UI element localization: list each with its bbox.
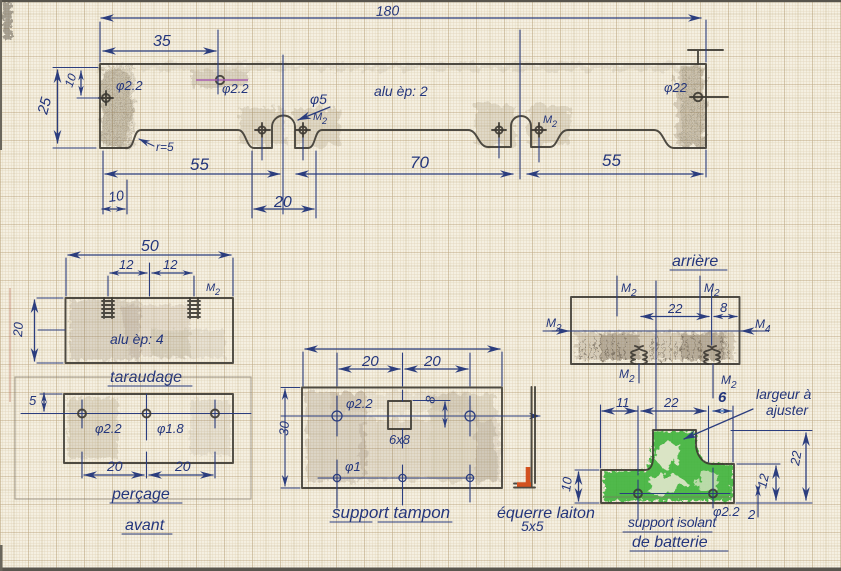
svg-text:alu èp: 4: alu èp: 4 [110,331,164,347]
svg-text:50: 50 [141,238,159,255]
svg-text:35: 35 [153,33,171,50]
svg-text:φ22: φ22 [664,80,688,95]
svg-text:support tampon: support tampon [332,503,450,522]
svg-text:10: 10 [107,187,125,205]
svg-text:2: 2 [214,287,220,297]
svg-text:2: 2 [551,119,557,129]
svg-text:M: M [621,281,631,295]
svg-text:5: 5 [29,393,37,408]
svg-text:2: 2 [730,380,737,391]
svg-text:12: 12 [119,257,134,272]
svg-text:φ1.8: φ1.8 [157,421,184,436]
svg-text:70: 70 [410,153,429,172]
svg-text:20: 20 [361,353,379,370]
svg-text:M: M [619,367,629,381]
svg-text:20: 20 [106,458,123,474]
svg-text:M: M [704,281,714,295]
svg-text:5x5: 5x5 [521,518,544,534]
svg-text:M: M [546,316,556,330]
svg-text:22: 22 [663,395,679,410]
svg-text:M: M [721,373,731,387]
svg-text:φ2.2: φ2.2 [95,421,122,436]
svg-text:8: 8 [720,300,728,315]
svg-text:φ2.2: φ2.2 [713,504,740,519]
svg-text:de batterie: de batterie [632,534,708,551]
svg-text:10: 10 [558,475,575,492]
svg-text:12: 12 [163,257,178,272]
svg-text:perçage: perçage [111,486,170,503]
svg-text:11: 11 [616,395,630,410]
svg-text:20: 20 [273,194,292,211]
svg-text:φ2.2: φ2.2 [346,396,373,411]
svg-text:avant: avant [125,517,165,534]
svg-text:20: 20 [174,458,191,474]
svg-text:30: 30 [276,420,292,436]
svg-text:20: 20 [10,321,26,338]
svg-text:22: 22 [667,301,683,316]
svg-text:20: 20 [423,353,441,370]
svg-text:2: 2 [630,288,637,299]
svg-text:6x8: 6x8 [389,432,411,447]
svg-text:4: 4 [765,324,771,335]
svg-text:55: 55 [190,155,209,174]
svg-text:support isolant: support isolant [628,514,717,530]
svg-text:2: 2 [747,507,756,522]
svg-text:équerre laiton: équerre laiton [497,505,595,522]
svg-text:arrière: arrière [672,253,718,270]
svg-text:alu èp: 2: alu èp: 2 [374,83,428,99]
svg-text:55: 55 [602,151,621,170]
svg-text:r=5: r=5 [156,140,174,154]
svg-text:2: 2 [713,288,720,299]
svg-text:6: 6 [718,389,727,406]
svg-text:2: 2 [321,116,327,126]
svg-text:φ2.2: φ2.2 [222,81,249,96]
svg-text:ajuster: ajuster [766,402,809,418]
svg-text:180: 180 [376,2,400,19]
svg-text:largeur à: largeur à [756,386,811,402]
svg-text:φ1: φ1 [345,459,361,474]
svg-text:φ2.2: φ2.2 [116,78,143,93]
svg-text:φ5: φ5 [310,91,327,107]
svg-text:M: M [755,317,765,331]
svg-text:2: 2 [628,374,635,385]
svg-text:2: 2 [555,323,562,334]
